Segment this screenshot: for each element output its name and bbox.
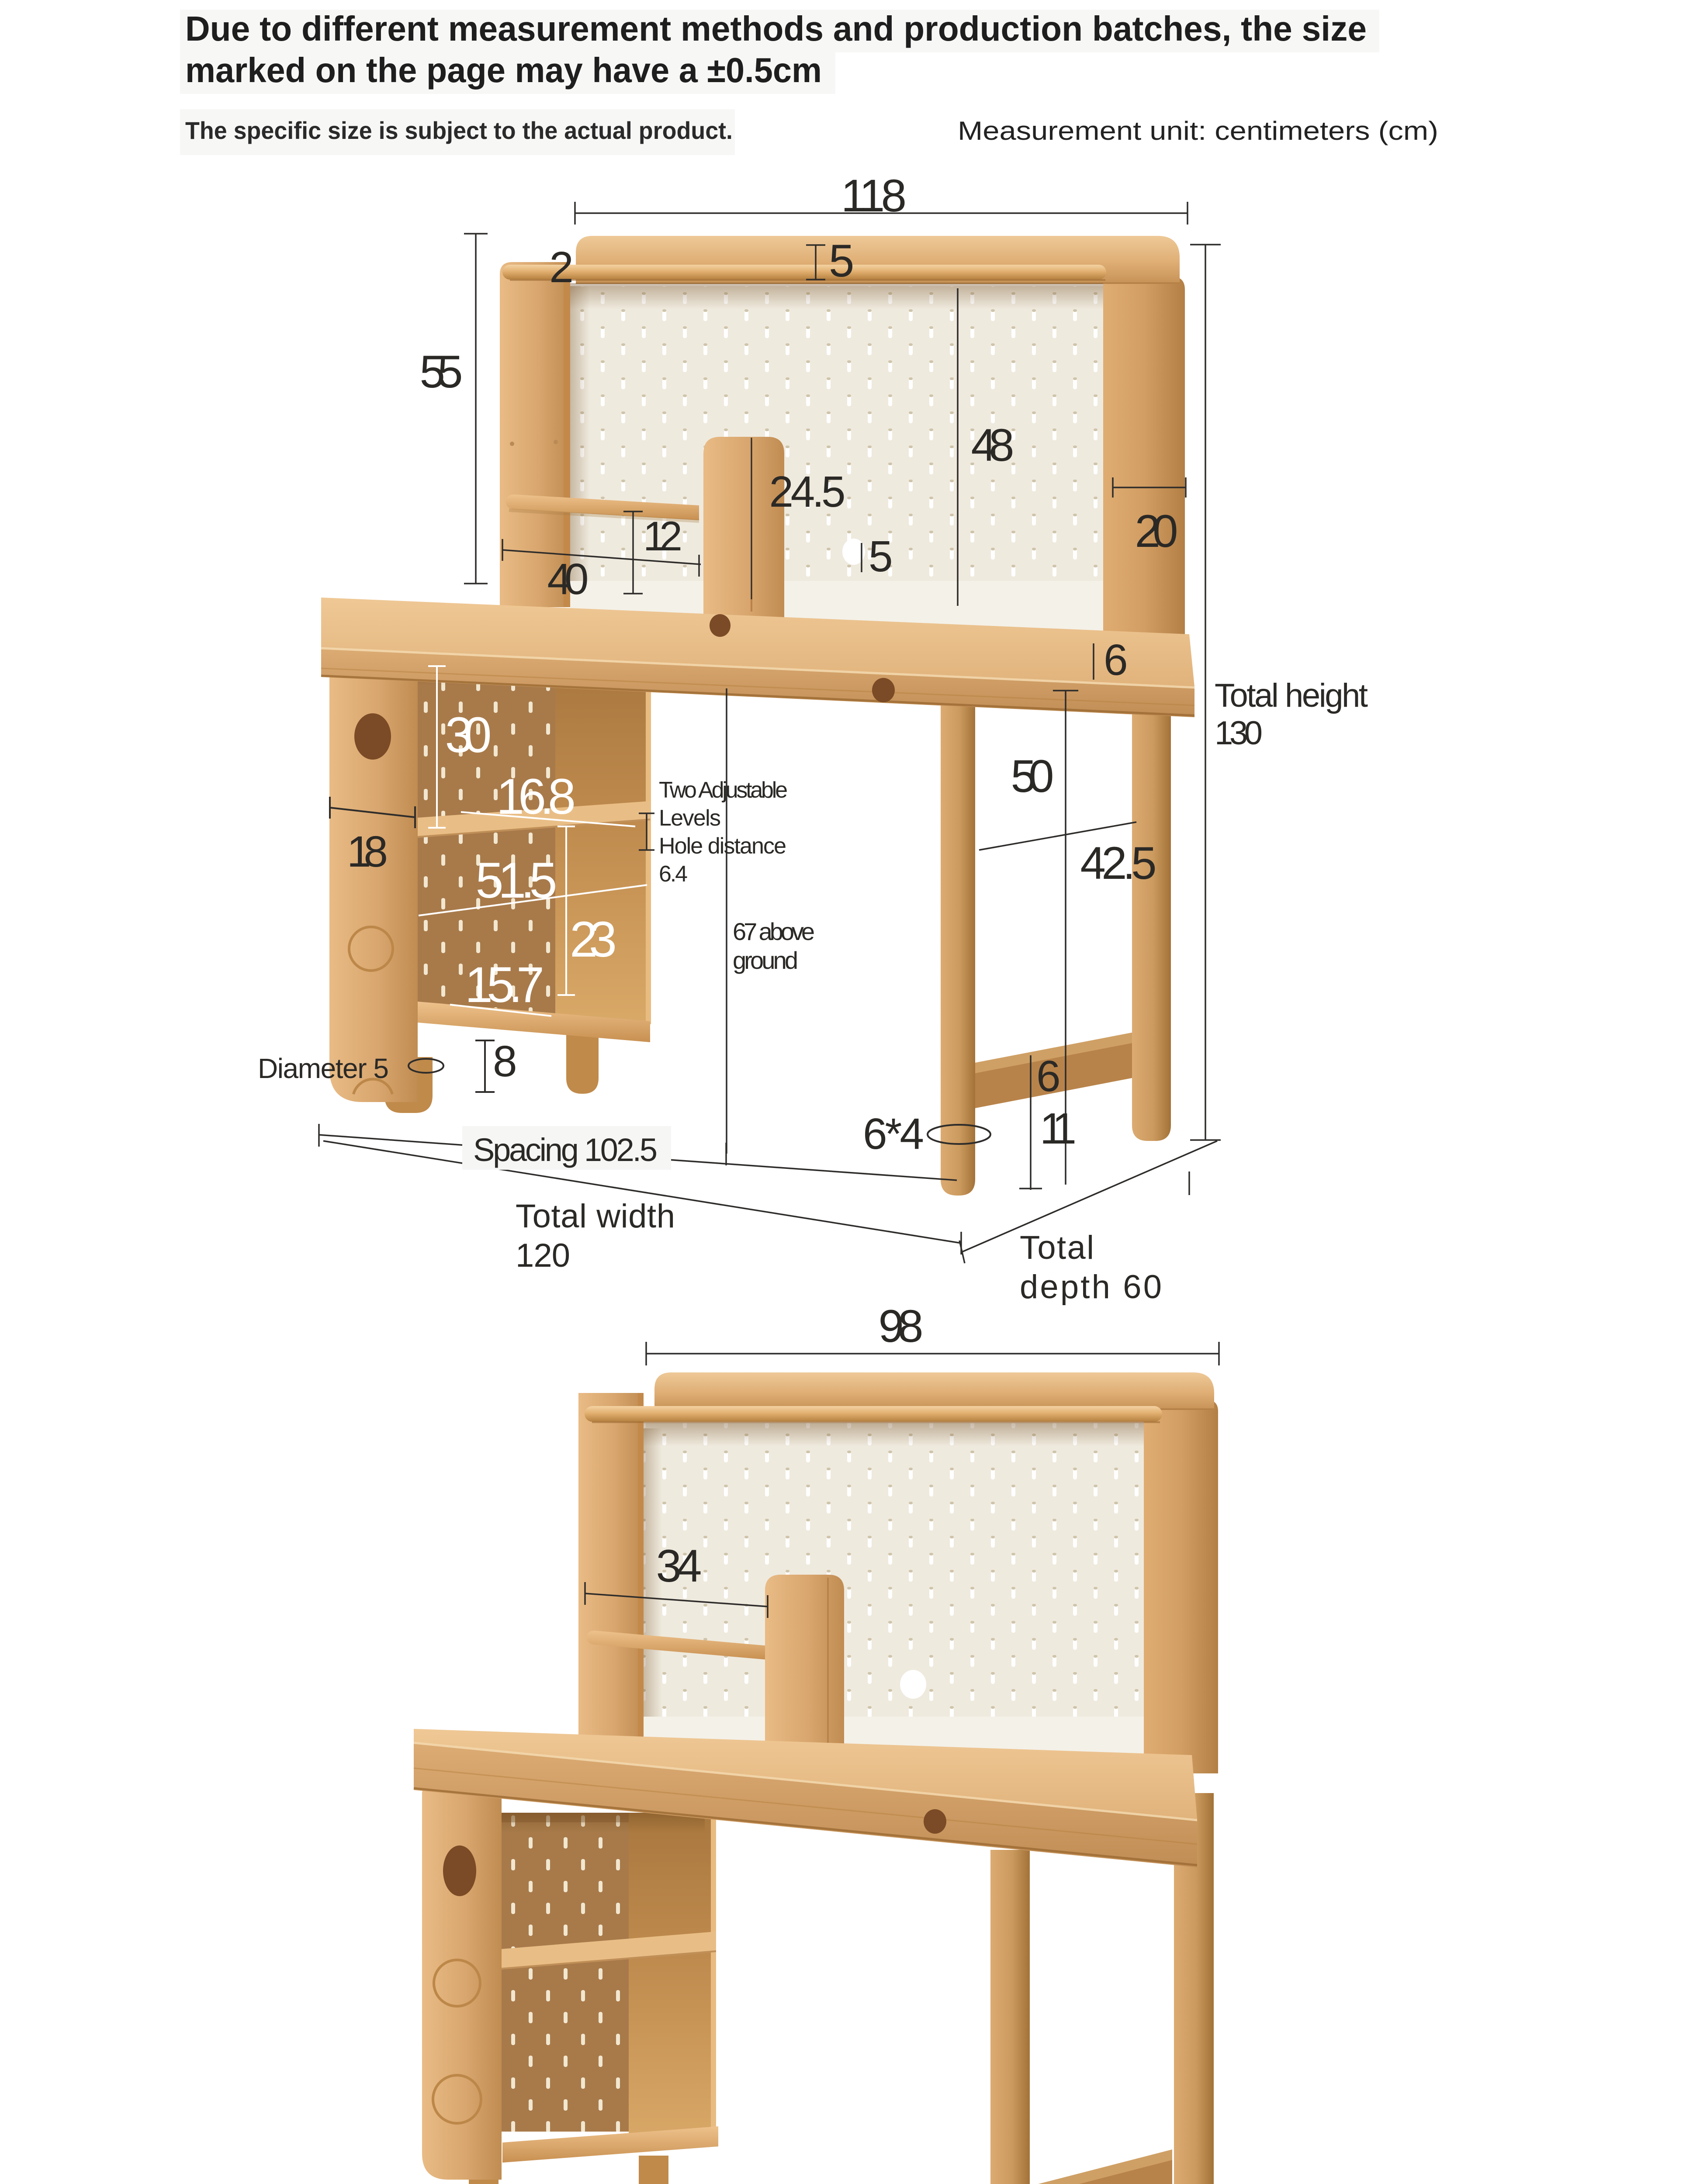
svg-text:118: 118 <box>841 170 907 221</box>
svg-text:Diameter 5: Diameter 5 <box>258 1053 389 1084</box>
svg-text:5: 5 <box>829 235 854 287</box>
svg-text:The specific size is subject t: The specific size is subject to the actu… <box>185 117 733 144</box>
svg-text:12: 12 <box>643 513 682 560</box>
svg-text:16.8: 16.8 <box>496 769 576 825</box>
svg-text:30: 30 <box>445 707 492 763</box>
svg-text:Total: Total <box>1020 1229 1094 1266</box>
svg-text:18: 18 <box>347 827 388 876</box>
svg-text:130: 130 <box>1215 715 1263 752</box>
svg-text:48: 48 <box>971 420 1014 471</box>
svg-text:marked on the page may have a: marked on the page may have a ±0.5cm <box>185 51 822 90</box>
svg-text:Spacing 102.5: Spacing 102.5 <box>473 1132 658 1168</box>
svg-text:Levels: Levels <box>659 805 721 831</box>
svg-text:6: 6 <box>1104 636 1128 684</box>
svg-text:6.4: 6.4 <box>659 861 688 887</box>
svg-text:34: 34 <box>656 1541 702 1592</box>
svg-text:Hole distance: Hole distance <box>659 833 786 859</box>
svg-text:Due to different measurement m: Due to different measurement methods and… <box>185 9 1367 48</box>
svg-text:20: 20 <box>1135 506 1178 557</box>
svg-text:Total width: Total width <box>516 1198 675 1235</box>
svg-text:Two Adjustable: Two Adjustable <box>659 778 788 803</box>
svg-text:2: 2 <box>549 243 574 292</box>
svg-text:67 above: 67 above <box>733 918 815 945</box>
svg-text:40: 40 <box>547 555 589 604</box>
svg-text:11: 11 <box>1040 1104 1077 1153</box>
svg-text:5: 5 <box>869 532 893 581</box>
svg-text:55: 55 <box>420 346 463 397</box>
svg-text:24.5: 24.5 <box>769 467 846 516</box>
svg-text:50: 50 <box>1011 751 1054 802</box>
svg-text:42.5: 42.5 <box>1080 838 1157 889</box>
svg-text:23: 23 <box>570 912 617 968</box>
svg-text:Total height: Total height <box>1215 677 1368 714</box>
svg-text:120: 120 <box>516 1237 570 1274</box>
svg-text:98: 98 <box>879 1301 924 1352</box>
svg-text:Measurement unit: centimeters: Measurement unit: centimeters (cm) <box>958 116 1438 145</box>
svg-text:ground: ground <box>733 947 798 974</box>
svg-text:15.7: 15.7 <box>465 957 544 1013</box>
svg-text:6: 6 <box>1036 1052 1061 1101</box>
svg-text:51.5: 51.5 <box>476 853 557 909</box>
svg-text:6*4: 6*4 <box>863 1109 924 1158</box>
svg-text:8: 8 <box>493 1037 517 1086</box>
